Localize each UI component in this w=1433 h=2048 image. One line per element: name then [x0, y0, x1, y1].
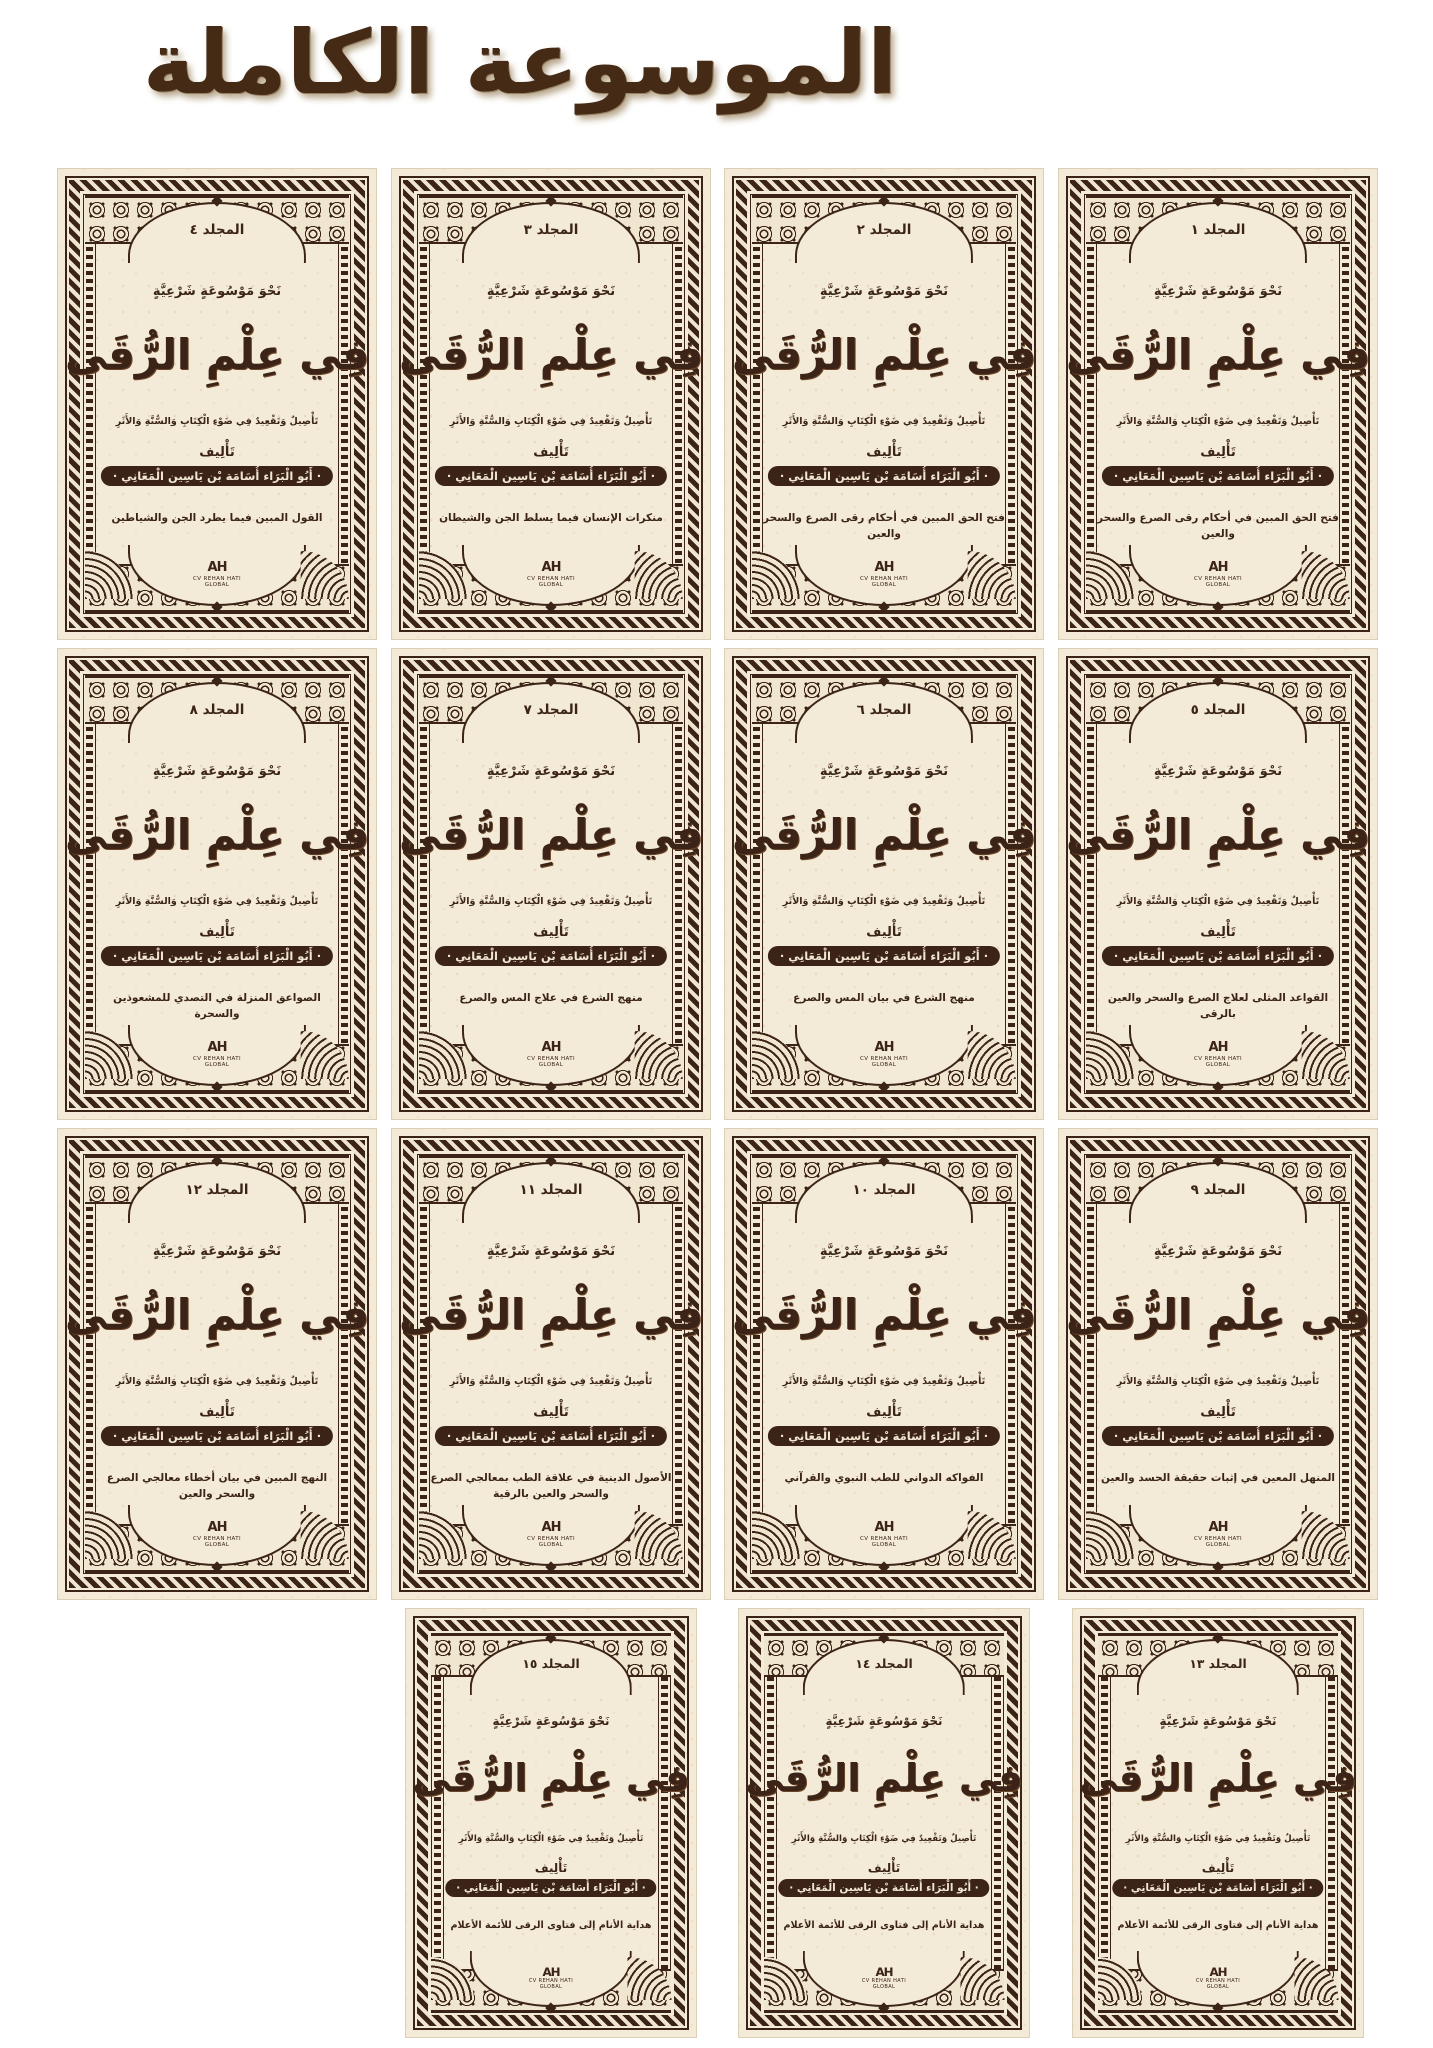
- volume-label: المجلد ١٠: [725, 1182, 1043, 1198]
- publisher-monogram: AH: [725, 1041, 1043, 1056]
- book-cover: المجلد ١٤ نَحْوَ مَوْسُوعَةٍ شَرْعِيَّةٍ…: [738, 1608, 1030, 2038]
- subtitle-line: تَأْصِيلٌ وَتَقْعِيدٌ فِي ضَوْءِ الْكِتَ…: [1084, 416, 1351, 427]
- main-title-calligraphy: فِي عِلْمِ الرُّقَى: [1075, 783, 1361, 886]
- publisher-logo: AH CV REHAN HATI GLOBAL: [58, 1041, 376, 1069]
- publisher-monogram: AH: [392, 561, 710, 576]
- volume-tagline: فتح الحق المبين في أحكام رقى الصرع والسح…: [760, 510, 1008, 543]
- byline-label: تَأْلِيف: [424, 445, 678, 460]
- volume-tagline: القول المبين فيما يطرد الجن والشياطين: [93, 510, 341, 526]
- series-line: نَحْوَ مَوْسُوعَةٍ شَرْعِيَّةٍ: [757, 764, 1011, 779]
- book-cover: المجلد ١٣ نَحْوَ مَوْسُوعَةٍ شَرْعِيَّةٍ…: [1072, 1608, 1364, 2038]
- author-box: · أَبُو الْبَرَاء أُسَامَة بْن يَاسِين ا…: [435, 466, 667, 486]
- publisher-monogram: AH: [1059, 1041, 1377, 1056]
- publisher-monogram: AH: [392, 1521, 710, 1536]
- author-box: · أَبُو الْبَرَاء أُسَامَة بْن يَاسِين ا…: [1102, 466, 1334, 486]
- collection-title-calligraphy: الموسوعة الكاملة: [150, 2, 890, 122]
- volume-label: المجلد ١٥: [406, 1657, 696, 1671]
- main-title-calligraphy: فِي عِلْمِ الرُّقَى: [74, 783, 360, 886]
- volume-tagline: هداية الأنام إلى فتاوى الرقى للأئمة الأع…: [1105, 1919, 1331, 1934]
- publisher-name-line2: GLOBAL: [739, 1985, 1029, 1991]
- volume-label: المجلد ٧: [392, 702, 710, 718]
- series-line: نَحْوَ مَوْسُوعَةٍ شَرْعِيَّةٍ: [90, 1244, 344, 1259]
- main-title-calligraphy: فِي عِلْمِ الرُّقَى: [74, 1263, 360, 1366]
- volume-tagline: النهج المبين في بيان أخطاء معالجي الصرع …: [93, 1470, 341, 1503]
- subtitle-line: تَأْصِيلٌ وَتَقْعِيدٌ فِي ضَوْءِ الْكِتَ…: [429, 1834, 673, 1844]
- publisher-name-line2: GLOBAL: [1073, 1985, 1363, 1991]
- publisher-monogram: AH: [392, 1041, 710, 1056]
- byline-label: تَأْلِيف: [90, 445, 344, 460]
- byline-label: تَأْلِيف: [424, 1405, 678, 1420]
- publisher-logo: AH CV REHAN HATI GLOBAL: [725, 1041, 1043, 1069]
- subtitle-line: تَأْصِيلٌ وَتَقْعِيدٌ فِي ضَوْءِ الْكِتَ…: [750, 896, 1017, 907]
- book-cover: المجلد ١٠ نَحْوَ مَوْسُوعَةٍ شَرْعِيَّةٍ…: [724, 1128, 1044, 1600]
- subtitle-line: تَأْصِيلٌ وَتَقْعِيدٌ فِي ضَوْءِ الْكِتَ…: [1096, 1834, 1340, 1844]
- publisher-name-line2: GLOBAL: [406, 1985, 696, 1991]
- publisher-logo: AH CV REHAN HATI GLOBAL: [725, 1521, 1043, 1549]
- author-box: · أَبُو الْبَرَاء أُسَامَة بْن يَاسِين ا…: [768, 946, 1000, 966]
- byline-label: تَأْلِيف: [424, 925, 678, 940]
- publisher-logo: AH CV REHAN HATI GLOBAL: [1073, 1966, 1363, 1991]
- publisher-monogram: AH: [58, 561, 376, 576]
- volume-tagline: فتح الحق المبين في أحكام رقى الصرع والسح…: [1094, 510, 1342, 543]
- volume-label: المجلد ١١: [392, 1182, 710, 1198]
- publisher-name-line2: GLOBAL: [1059, 582, 1377, 588]
- author-box: · أَبُو الْبَرَاء أُسَامَة بْن يَاسِين ا…: [778, 1879, 989, 1896]
- publisher-logo: AH CV REHAN HATI GLOBAL: [392, 1041, 710, 1069]
- volume-tagline: منهج الشرع في علاج المس والصرع: [427, 990, 675, 1006]
- volume-tagline: المنهل المعين في إثبات حقيقة الحسد والعي…: [1094, 1470, 1342, 1486]
- byline-label: تَأْلِيف: [768, 1861, 1000, 1875]
- publisher-logo: AH CV REHAN HATI GLOBAL: [406, 1966, 696, 1991]
- publisher-name-line2: GLOBAL: [725, 1542, 1043, 1548]
- publisher-name-line2: GLOBAL: [725, 582, 1043, 588]
- volume-tagline: منهج الشرع في بيان المس والصرع: [760, 990, 1008, 1006]
- volume-label: المجلد ١٢: [58, 1182, 376, 1198]
- volume-tagline: الأصول الدينية في علاقة الطب بمعالجي الص…: [427, 1470, 675, 1503]
- volume-tagline: هداية الأنام إلى فتاوى الرقى للأئمة الأع…: [771, 1919, 997, 1934]
- byline-label: تَأْلِيف: [1091, 925, 1345, 940]
- author-box: · أَبُو الْبَرَاء أُسَامَة بْن يَاسِين ا…: [101, 946, 333, 966]
- series-line: نَحْوَ مَوْسُوعَةٍ شَرْعِيَّةٍ: [768, 1714, 1000, 1728]
- author-box: · أَبُو الْبَرَاء أُسَامَة بْن يَاسِين ا…: [101, 1426, 333, 1446]
- series-line: نَحْوَ مَوْسُوعَةٍ شَرْعِيَّةٍ: [757, 284, 1011, 299]
- publisher-logo: AH CV REHAN HATI GLOBAL: [1059, 561, 1377, 589]
- author-box: · أَبُو الْبَرَاء أُسَامَة بْن يَاسِين ا…: [435, 946, 667, 966]
- main-title-calligraphy: فِي عِلْمِ الرُّقَى: [741, 1263, 1027, 1366]
- author-box: · أَبُو الْبَرَاء أُسَامَة بْن يَاسِين ا…: [768, 466, 1000, 486]
- main-title-calligraphy: فِي عِلْمِ الرُّقَى: [408, 1263, 694, 1366]
- volume-label: المجلد ٩: [1059, 1182, 1377, 1198]
- main-title-calligraphy: فِي عِلْمِ الرُّقَى: [408, 303, 694, 406]
- publisher-logo: AH CV REHAN HATI GLOBAL: [739, 1966, 1029, 1991]
- main-title-calligraphy: فِي عِلْمِ الرُّقَى: [74, 303, 360, 406]
- author-box: · أَبُو الْبَرَاء أُسَامَة بْن يَاسِين ا…: [1102, 1426, 1334, 1446]
- volume-tagline: الصواعق المنزلة في التصدي للمشعوذين والس…: [93, 990, 341, 1023]
- publisher-name-line2: GLOBAL: [58, 1542, 376, 1548]
- volume-tagline: منكرات الإنسان فيما يسلط الجن والشيطان: [427, 510, 675, 526]
- publisher-monogram: AH: [58, 1041, 376, 1056]
- publisher-name-line2: GLOBAL: [725, 1062, 1043, 1068]
- byline-label: تَأْلِيف: [435, 1861, 667, 1875]
- publisher-monogram: AH: [406, 1966, 696, 1980]
- byline-label: تَأْلِيف: [1091, 1405, 1345, 1420]
- volume-label: المجلد ٨: [58, 702, 376, 718]
- publisher-logo: AH CV REHAN HATI GLOBAL: [58, 1521, 376, 1549]
- subtitle-line: تَأْصِيلٌ وَتَقْعِيدٌ فِي ضَوْءِ الْكِتَ…: [750, 1376, 1017, 1387]
- publisher-monogram: AH: [1059, 1521, 1377, 1536]
- subtitle-line: تَأْصِيلٌ وَتَقْعِيدٌ فِي ضَوْءِ الْكِتَ…: [83, 1376, 350, 1387]
- byline-label: تَأْلِيف: [757, 1405, 1011, 1420]
- book-cover: المجلد ٥ نَحْوَ مَوْسُوعَةٍ شَرْعِيَّةٍ …: [1058, 648, 1378, 1120]
- book-cover: المجلد ٣ نَحْوَ مَوْسُوعَةٍ شَرْعِيَّةٍ …: [391, 168, 711, 640]
- publisher-monogram: AH: [1073, 1966, 1363, 1980]
- publisher-name-line2: GLOBAL: [392, 1542, 710, 1548]
- main-title-calligraphy: فِي عِلْمِ الرُّقَى: [1075, 303, 1361, 406]
- series-line: نَحْوَ مَوْسُوعَةٍ شَرْعِيَّةٍ: [435, 1714, 667, 1728]
- volume-label: المجلد ٦: [725, 702, 1043, 718]
- author-box: · أَبُو الْبَرَاء أُسَامَة بْن يَاسِين ا…: [1112, 1879, 1323, 1896]
- byline-label: تَأْلِيف: [757, 925, 1011, 940]
- publisher-name-line2: GLOBAL: [392, 1062, 710, 1068]
- publisher-logo: AH CV REHAN HATI GLOBAL: [1059, 1521, 1377, 1549]
- publisher-logo: AH CV REHAN HATI GLOBAL: [58, 561, 376, 589]
- byline-label: تَأْلِيف: [1091, 445, 1345, 460]
- volume-label: المجلد ١٤: [739, 1657, 1029, 1671]
- subtitle-line: تَأْصِيلٌ وَتَقْعِيدٌ فِي ضَوْءِ الْكِتَ…: [83, 416, 350, 427]
- volume-tagline: القواعد المثلى لعلاج الصرع والسحر والعين…: [1094, 990, 1342, 1023]
- volume-label: المجلد ٤: [58, 222, 376, 238]
- author-box: · أَبُو الْبَرَاء أُسَامَة بْن يَاسِين ا…: [101, 466, 333, 486]
- subtitle-line: تَأْصِيلٌ وَتَقْعِيدٌ فِي ضَوْءِ الْكِتَ…: [417, 1376, 684, 1387]
- publisher-monogram: AH: [58, 1521, 376, 1536]
- book-cover: المجلد ١ نَحْوَ مَوْسُوعَةٍ شَرْعِيَّةٍ …: [1058, 168, 1378, 640]
- series-line: نَحْوَ مَوْسُوعَةٍ شَرْعِيَّةٍ: [424, 284, 678, 299]
- publisher-logo: AH CV REHAN HATI GLOBAL: [1059, 1041, 1377, 1069]
- series-line: نَحْوَ مَوْسُوعَةٍ شَرْعِيَّةٍ: [424, 764, 678, 779]
- byline-label: تَأْلِيف: [1102, 1861, 1334, 1875]
- main-title-calligraphy: فِي عِلْمِ الرُّقَى: [741, 783, 1027, 886]
- publisher-name-line2: GLOBAL: [58, 1062, 376, 1068]
- volume-tagline: الفواكه الدواني للطب النبوي والقرآني: [760, 1470, 1008, 1486]
- series-line: نَحْوَ مَوْسُوعَةٍ شَرْعِيَّةٍ: [424, 1244, 678, 1259]
- author-box: · أَبُو الْبَرَاء أُسَامَة بْن يَاسِين ا…: [435, 1426, 667, 1446]
- main-title-calligraphy: فِي عِلْمِ الرُّقَى: [741, 303, 1027, 406]
- poster-page: { "header": { "title": "الموسوعة الكاملة…: [0, 0, 1433, 2048]
- series-line: نَحْوَ مَوْسُوعَةٍ شَرْعِيَّةٍ: [1102, 1714, 1334, 1728]
- subtitle-line: تَأْصِيلٌ وَتَقْعِيدٌ فِي ضَوْءِ الْكِتَ…: [417, 896, 684, 907]
- subtitle-line: تَأْصِيلٌ وَتَقْعِيدٌ فِي ضَوْءِ الْكِتَ…: [1084, 1376, 1351, 1387]
- volume-label: المجلد ٢: [725, 222, 1043, 238]
- main-title-calligraphy: فِي عِلْمِ الرُّقَى: [1075, 1263, 1361, 1366]
- publisher-logo: AH CV REHAN HATI GLOBAL: [725, 561, 1043, 589]
- volume-tagline: هداية الأنام إلى فتاوى الرقى للأئمة الأع…: [438, 1919, 664, 1934]
- subtitle-line: تَأْصِيلٌ وَتَقْعِيدٌ فِي ضَوْءِ الْكِتَ…: [1084, 896, 1351, 907]
- book-cover: المجلد ١١ نَحْوَ مَوْسُوعَةٍ شَرْعِيَّةٍ…: [391, 1128, 711, 1600]
- subtitle-line: تَأْصِيلٌ وَتَقْعِيدٌ فِي ضَوْءِ الْكِتَ…: [83, 896, 350, 907]
- series-line: نَحْوَ مَوْسُوعَةٍ شَرْعِيَّةٍ: [90, 284, 344, 299]
- main-title-calligraphy: فِي عِلْمِ الرُّقَى: [1088, 1731, 1349, 1825]
- subtitle-line: تَأْصِيلٌ وَتَقْعِيدٌ فِي ضَوْءِ الْكِتَ…: [750, 416, 1017, 427]
- book-cover: المجلد ٧ نَحْوَ مَوْسُوعَةٍ شَرْعِيَّةٍ …: [391, 648, 711, 1120]
- subtitle-line: تَأْصِيلٌ وَتَقْعِيدٌ فِي ضَوْءِ الْكِتَ…: [762, 1834, 1006, 1844]
- series-line: نَحْوَ مَوْسُوعَةٍ شَرْعِيَّةٍ: [1091, 1244, 1345, 1259]
- volume-label: المجلد ٣: [392, 222, 710, 238]
- publisher-logo: AH CV REHAN HATI GLOBAL: [392, 1521, 710, 1549]
- main-title-calligraphy: فِي عِلْمِ الرُّقَى: [754, 1731, 1015, 1825]
- volume-label: المجلد ١: [1059, 222, 1377, 238]
- byline-label: تَأْلِيف: [90, 1405, 344, 1420]
- series-line: نَحْوَ مَوْسُوعَةٍ شَرْعِيَّةٍ: [90, 764, 344, 779]
- main-title-calligraphy: فِي عِلْمِ الرُّقَى: [408, 783, 694, 886]
- book-cover: المجلد ٤ نَحْوَ مَوْسُوعَةٍ شَرْعِيَّةٍ …: [57, 168, 377, 640]
- volume-label: المجلد ٥: [1059, 702, 1377, 718]
- series-line: نَحْوَ مَوْسُوعَةٍ شَرْعِيَّةٍ: [757, 1244, 1011, 1259]
- publisher-name-line2: GLOBAL: [58, 582, 376, 588]
- byline-label: تَأْلِيف: [90, 925, 344, 940]
- book-cover: المجلد ١٥ نَحْوَ مَوْسُوعَةٍ شَرْعِيَّةٍ…: [405, 1608, 697, 2038]
- volume-label: المجلد ١٣: [1073, 1657, 1363, 1671]
- author-box: · أَبُو الْبَرَاء أُسَامَة بْن يَاسِين ا…: [445, 1879, 656, 1896]
- main-title-calligraphy: فِي عِلْمِ الرُّقَى: [421, 1731, 682, 1825]
- series-line: نَحْوَ مَوْسُوعَةٍ شَرْعِيَّةٍ: [1091, 284, 1345, 299]
- subtitle-line: تَأْصِيلٌ وَتَقْعِيدٌ فِي ضَوْءِ الْكِتَ…: [417, 416, 684, 427]
- book-cover: المجلد ٩ نَحْوَ مَوْسُوعَةٍ شَرْعِيَّةٍ …: [1058, 1128, 1378, 1600]
- publisher-name-line2: GLOBAL: [1059, 1062, 1377, 1068]
- publisher-monogram: AH: [725, 561, 1043, 576]
- author-box: · أَبُو الْبَرَاء أُسَامَة بْن يَاسِين ا…: [1102, 946, 1334, 966]
- byline-label: تَأْلِيف: [757, 445, 1011, 460]
- book-cover: المجلد ١٢ نَحْوَ مَوْسُوعَةٍ شَرْعِيَّةٍ…: [57, 1128, 377, 1600]
- book-cover: المجلد ٦ نَحْوَ مَوْسُوعَةٍ شَرْعِيَّةٍ …: [724, 648, 1044, 1120]
- series-line: نَحْوَ مَوْسُوعَةٍ شَرْعِيَّةٍ: [1091, 764, 1345, 779]
- publisher-logo: AH CV REHAN HATI GLOBAL: [392, 561, 710, 589]
- book-cover: المجلد ٨ نَحْوَ مَوْسُوعَةٍ شَرْعِيَّةٍ …: [57, 648, 377, 1120]
- publisher-monogram: AH: [1059, 561, 1377, 576]
- publisher-name-line2: GLOBAL: [392, 582, 710, 588]
- publisher-monogram: AH: [739, 1966, 1029, 1980]
- author-box: · أَبُو الْبَرَاء أُسَامَة بْن يَاسِين ا…: [768, 1426, 1000, 1446]
- publisher-name-line2: GLOBAL: [1059, 1542, 1377, 1548]
- book-cover: المجلد ٢ نَحْوَ مَوْسُوعَةٍ شَرْعِيَّةٍ …: [724, 168, 1044, 640]
- publisher-monogram: AH: [725, 1521, 1043, 1536]
